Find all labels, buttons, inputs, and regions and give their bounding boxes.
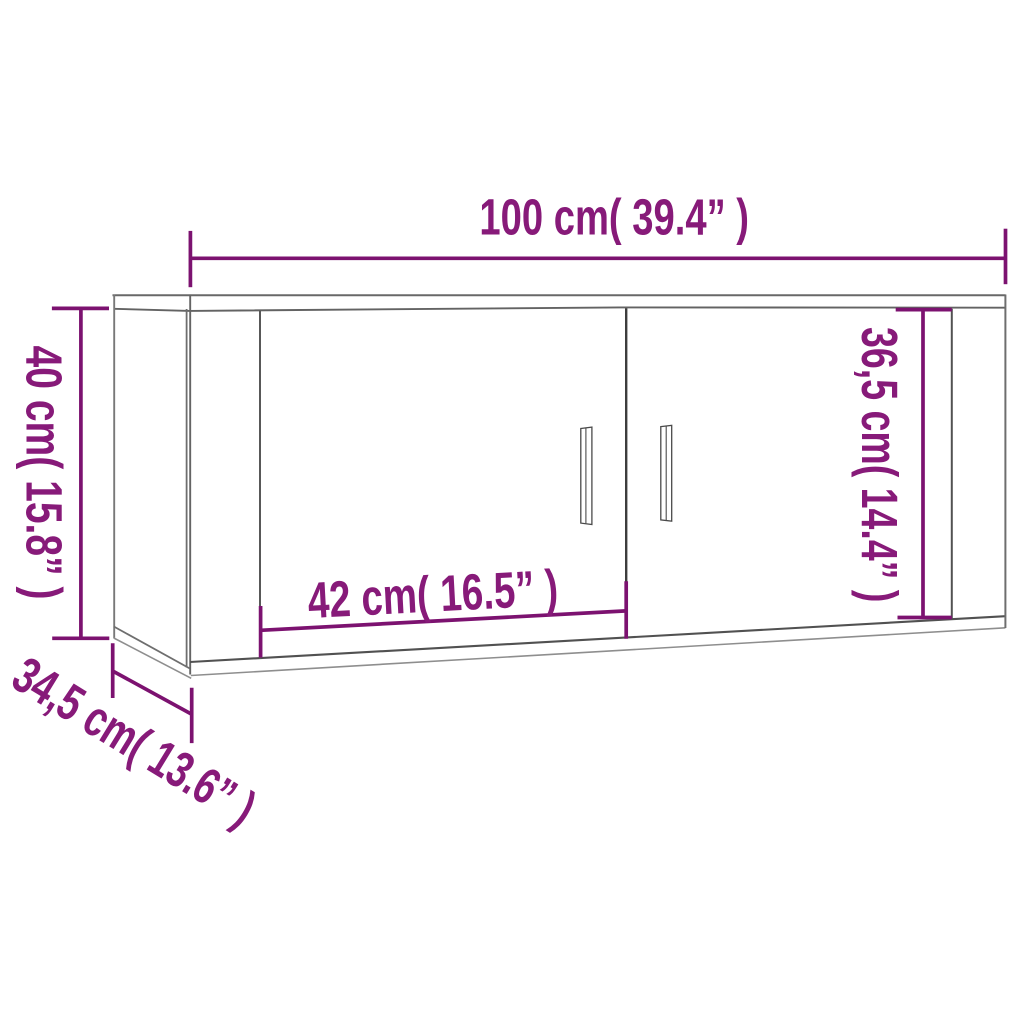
- svg-text:100 cm( 39.4” ): 100 cm( 39.4” ): [479, 188, 749, 246]
- svg-text:40 cm( 15.8” ): 40 cm( 15.8” ): [15, 346, 72, 600]
- svg-text:34,5 cm( 13.6” ): 34,5 cm( 13.6” ): [3, 647, 265, 837]
- svg-text:42 cm( 16.5” ): 42 cm( 16.5” ): [306, 559, 559, 630]
- svg-text:36,5 cm( 14.4” ): 36,5 cm( 14.4” ): [851, 327, 908, 602]
